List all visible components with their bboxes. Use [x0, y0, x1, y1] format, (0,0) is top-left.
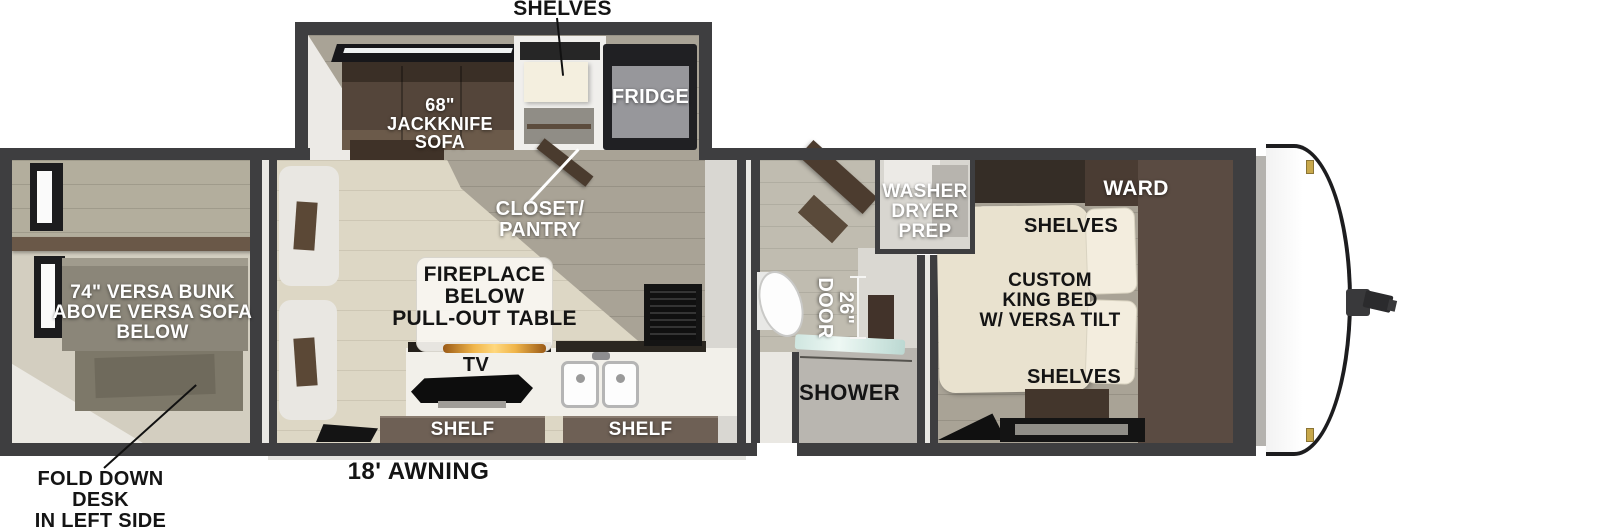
label-jackknife-sofa: 68" JACKKNIFE SOFA [365, 96, 515, 152]
label-shower: SHOWER [792, 382, 907, 405]
wall-rear-divider-gap [262, 160, 269, 443]
sink-left-drain [576, 374, 585, 383]
label-closet-pantry: CLOSET/ PANTRY [470, 199, 610, 241]
slideout-wall-top [295, 22, 712, 35]
slideout-shelf-upper [524, 62, 588, 102]
jackknife-sofa-backrest [342, 62, 520, 82]
slideout-wall-right [699, 22, 712, 160]
wall-bottom-left [0, 443, 757, 456]
slideout-window [331, 44, 525, 62]
label-door-26: 26" DOOR [814, 273, 856, 343]
label-washer-dryer-prep: WASHER DRYER PREP [877, 182, 973, 241]
stove-grates [650, 290, 696, 340]
label-shelf-left: SHELF [380, 420, 545, 440]
label-tv: TV [446, 355, 506, 376]
sink-right [602, 361, 639, 408]
wall-bottom-right [797, 443, 1240, 456]
wall-top-right [700, 148, 1240, 160]
wall-left-end [0, 148, 12, 456]
label-shelves-slideout: SHELVES [505, 0, 620, 20]
label-awning: 18' AWNING [336, 460, 501, 485]
marker-light-bottom [1306, 428, 1314, 442]
ward-column [1138, 160, 1234, 443]
bedroom-step-well-inner [1015, 424, 1128, 435]
slideout-wall-left [295, 22, 308, 160]
label-shelves-bed-top: SHELVES [1021, 216, 1121, 237]
living-seat-upper-cushion [293, 201, 317, 250]
wall-bed-divider-a [917, 255, 925, 443]
slideout-window-glass [343, 48, 513, 53]
versa-sofa-cushion [94, 354, 215, 398]
versa-bunk-edge [62, 258, 248, 266]
wall-rear-divider-b [269, 160, 277, 443]
fireplace-flame [443, 344, 546, 353]
slideout-shelf-lower-board [527, 124, 591, 129]
marker-light-top [1306, 160, 1314, 174]
wall-top-left [0, 148, 310, 160]
living-seat-lower-cushion [293, 337, 317, 386]
rear-window-upper-glass [37, 171, 52, 223]
wall-front [1233, 148, 1256, 456]
bathroom-vanity-dark [868, 295, 894, 339]
label-king-bed: CUSTOM KING BED W/ VERSA TILT [955, 271, 1145, 330]
hitch-nub [1387, 299, 1397, 312]
label-ward: WARD [1086, 178, 1186, 200]
label-fridge: FRIDGE [608, 87, 693, 108]
bedroom-overhead-cabinet [975, 156, 1087, 203]
sink-left [561, 361, 599, 408]
tv-base [438, 401, 506, 408]
wall-bath-divider-a [737, 160, 746, 443]
entry-landing [760, 352, 793, 443]
front-cap [1266, 144, 1352, 456]
label-shelves-bed-bottom: SHELVES [1024, 367, 1124, 388]
rear-shelf-board [12, 237, 252, 251]
sink-right-drain [616, 374, 625, 383]
label-fold-down-desk: FOLD DOWN DESK IN LEFT SIDE REAR BED [8, 469, 193, 527]
label-fireplace-table: FIREPLACE BELOW PULL-OUT TABLE [392, 264, 577, 329]
label-versa-bunk: 74" VERSA BUNK ABOVE VERSA SOFA BELOW [45, 283, 260, 342]
door-dimension-line [857, 277, 859, 338]
label-shelf-right: SHELF [563, 420, 718, 440]
sink-faucet [592, 352, 610, 360]
rv-floorplan-canvas: SHELVES 68" JACKKNIFE SOFA FRIDGE CLOSET… [0, 0, 1600, 527]
